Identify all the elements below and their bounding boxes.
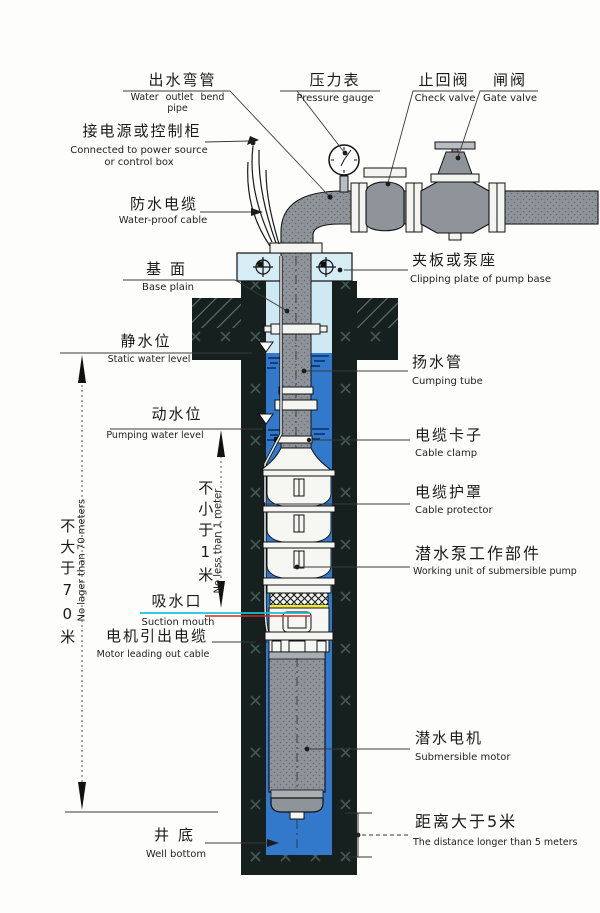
label-gate-valve-en: Gate valve xyxy=(477,93,543,105)
label-pressure-gauge-en: Pressure gauge xyxy=(288,93,382,105)
label-suction-mouth-cn: 吸水口 xyxy=(144,593,210,610)
pump-working-unit xyxy=(261,448,335,609)
label-min-submergence-cn: 不小于1米 xyxy=(196,480,213,588)
check-valve-part xyxy=(364,168,406,231)
label-bottom-distance-en: The distance longer than 5 meters xyxy=(413,838,577,849)
label-pumping-level-cn: 动水位 xyxy=(144,406,210,423)
label-depth-limit-cn: 不大于70米 xyxy=(58,518,75,650)
label-well-bottom-cn: 井底 xyxy=(142,827,214,844)
suction-mouth-part xyxy=(270,593,328,605)
label-cable-protector-cn: 电缆护罩 xyxy=(415,484,483,501)
surface-piping xyxy=(248,142,598,253)
pipe-bolt-clamp xyxy=(271,324,320,334)
pipe-joint xyxy=(279,387,313,394)
label-power-source-cn: 接电源或控制柜 xyxy=(82,123,202,140)
label-motor-cable-cn: 电机引出电缆 xyxy=(96,628,218,645)
label-check-valve-cn: 止回阀 xyxy=(412,72,476,89)
label-static-level-cn: 静水位 xyxy=(113,333,179,350)
motor-coupling xyxy=(265,608,333,652)
base-flange xyxy=(270,243,322,253)
label-waterproof-cable-cn: 防水电缆 xyxy=(122,196,206,213)
label-water-outlet-en: Water outlet bend pipe xyxy=(120,93,235,115)
label-submersible-motor-en: Submersible motor xyxy=(415,752,511,764)
label-motor-cable-en: Motor leading out cable xyxy=(88,650,218,661)
gate-valve-part xyxy=(421,142,489,240)
label-cable-protector-en: Cable protector xyxy=(415,505,493,517)
label-bottom-distance-cn: 距离大于5米 xyxy=(415,813,517,831)
label-pumping-tube-cn: 扬水管 xyxy=(412,354,463,371)
label-gate-valve-cn: 闸阀 xyxy=(484,72,536,89)
label-power-source-en2: or control box xyxy=(68,157,210,169)
label-clipping-plate-en: Clipping plate of pump base xyxy=(410,274,551,286)
label-base-plain-en: Base plain xyxy=(133,282,203,294)
label-submersible-motor-cn: 潜水电机 xyxy=(415,730,483,747)
label-working-unit-en: Working unit of submersible pump xyxy=(413,567,577,578)
label-check-valve-en: Check valve xyxy=(410,93,480,105)
pump-installation-diagram: 出水弯管 Water outlet bend pipe 压力表 Pressure… xyxy=(0,0,600,913)
label-water-outlet-cn: 出水弯管 xyxy=(130,72,235,89)
label-power-source-en: Connected to power source xyxy=(68,145,210,157)
label-cable-clamp-cn: 电缆卡子 xyxy=(415,427,483,444)
label-waterproof-cable-en: Water-proof cable xyxy=(110,215,216,227)
label-pumping-level-en: Pumping water level xyxy=(103,431,207,442)
label-depth-limit-en: No lager than 70 meters xyxy=(77,499,89,622)
label-working-unit-cn: 潜水泵工作部件 xyxy=(415,545,541,563)
label-well-bottom-en: Well bottom xyxy=(134,849,218,861)
label-pumping-tube-en: Cumping tube xyxy=(412,376,483,388)
label-cable-clamp-en: Cable clamp xyxy=(415,448,477,460)
label-clipping-plate-cn: 夹板或泵座 xyxy=(412,252,497,269)
label-pressure-gauge-cn: 压力表 xyxy=(299,72,371,89)
label-base-plain-cn: 基面 xyxy=(133,261,207,278)
waterproof-cable-part xyxy=(248,146,279,246)
label-static-level-en: Static water level xyxy=(105,355,193,366)
label-min-submergence-en: No less than 1 meter xyxy=(213,489,225,594)
